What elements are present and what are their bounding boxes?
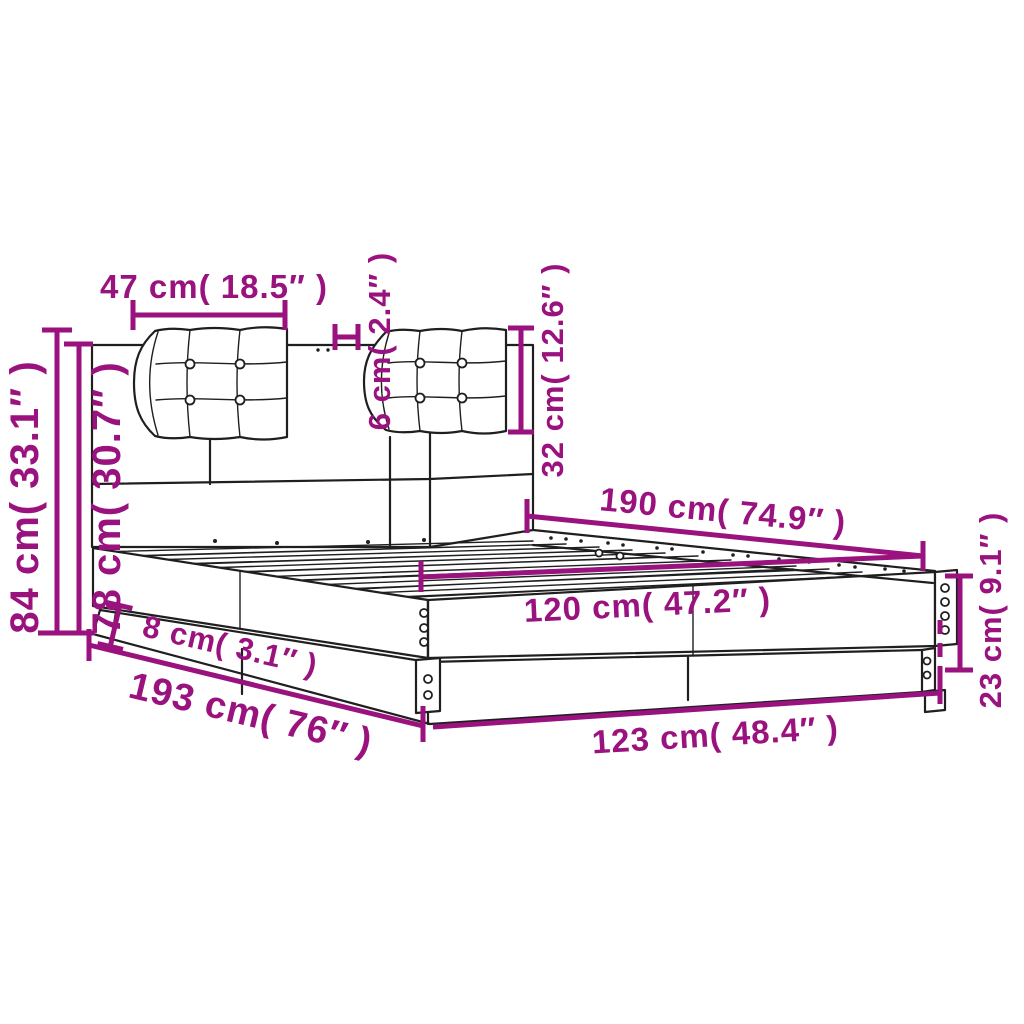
tuft-button <box>416 359 425 368</box>
tuft-button <box>236 360 245 369</box>
cushion-left <box>134 327 287 439</box>
headboard-screw-dot <box>213 539 217 543</box>
tuft-button <box>186 360 195 369</box>
dimension-label-base-height: 23 cm( 9.1″ ) <box>973 512 1008 709</box>
tuft-button <box>416 394 425 403</box>
headboard-screw-dot <box>366 540 370 544</box>
keyhole-slot <box>596 550 603 557</box>
dimension-label-cushion-thickness: 6 cm( 2.4″ ) <box>362 252 397 430</box>
dimension-label-total-height: 84 cm( 33.1″ ) <box>3 360 47 633</box>
dimension-label-cushion-height: 32 cm( 12.6″ ) <box>535 263 570 478</box>
dimension-label-bed-length-outer: 193 cm( 76″ ) <box>125 665 377 764</box>
keyhole-slot <box>617 553 624 560</box>
screw-hole <box>420 624 428 632</box>
screw-hole <box>941 584 949 592</box>
tuft-button <box>458 359 467 368</box>
tuft-button <box>458 394 467 403</box>
dimension-label-cushion-width: 47 cm( 18.5″ ) <box>100 268 328 305</box>
headboard-screw-dot <box>326 348 329 351</box>
bed-dimension-diagram: 47 cm( 18.5″ ) 6 cm( 2.4″ ) 32 cm( 12.6″… <box>0 0 1024 1024</box>
screw-hole <box>924 672 931 679</box>
headboard-screw-dot <box>275 541 279 545</box>
screw-hole <box>420 609 428 617</box>
dimension-cushion-width: 47 cm( 18.5″ ) <box>100 268 328 330</box>
screw-hole <box>941 598 949 606</box>
tuft-button <box>236 396 245 405</box>
screw-hole <box>424 691 432 699</box>
screw-hole <box>924 658 931 665</box>
cushion-left-body <box>134 327 287 439</box>
screw-hole <box>420 638 428 646</box>
screw-hole <box>941 612 949 620</box>
plinth-right-cap <box>922 648 935 692</box>
dimension-label-headboard-height: 78 cm( 30.7″ ) <box>85 361 129 634</box>
diagram-canvas: 47 cm( 18.5″ ) 6 cm( 2.4″ ) 32 cm( 12.6″… <box>0 0 1024 1024</box>
front-leg <box>416 658 440 713</box>
tuft-button <box>186 396 195 405</box>
dimension-headboard-height: 78 cm( 30.7″ ) <box>64 344 129 635</box>
screw-hole <box>424 675 432 683</box>
dimension-label-bed-length-inner: 190 cm( 74.9″ ) <box>598 480 848 541</box>
headboard-screw-dot <box>316 348 319 351</box>
headboard-screw-dot <box>422 538 426 542</box>
